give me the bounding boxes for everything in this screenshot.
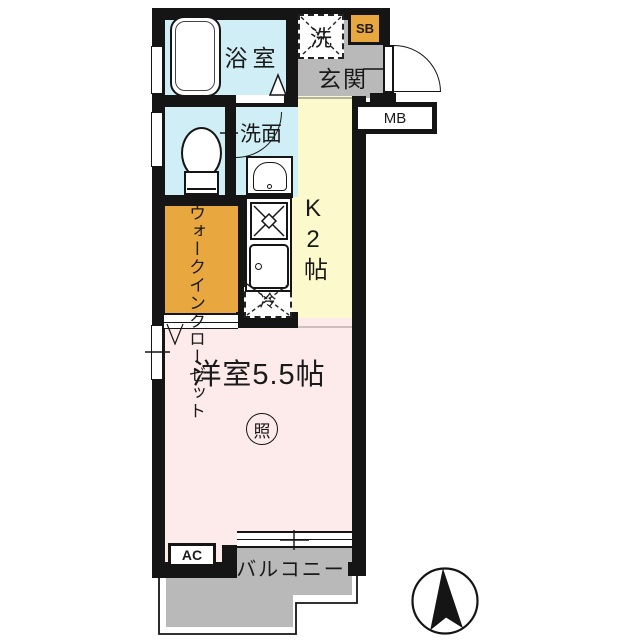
wall-toilet-washroom-divider — [225, 103, 236, 197]
ac-label: AC — [168, 543, 216, 567]
entrance-door-arc — [394, 45, 441, 92]
balcony-sliding-window — [237, 531, 352, 548]
main-room-window — [151, 325, 163, 380]
meterbox-label: MB — [353, 102, 437, 134]
entrance-door-leaf — [383, 45, 394, 93]
balcony-region-left — [166, 578, 293, 627]
bathroom-label: 浴室 — [205, 42, 300, 70]
lighting-symbol: 照 — [246, 413, 278, 445]
washbasin-drain — [267, 184, 272, 189]
toilet-window — [151, 112, 163, 167]
stove-icon — [250, 202, 288, 240]
laundry-label: 洗 — [298, 14, 344, 59]
sink-drain — [255, 263, 262, 270]
balcony-label: バルコニー — [226, 555, 356, 579]
refrigerator-label: 冷 — [244, 281, 292, 318]
main-room-label: 洋室5.5帖 — [164, 355, 354, 389]
kitchen-label: K2帖 — [296, 186, 330, 294]
north-arrow-icon — [413, 569, 478, 634]
washbasin-icon — [246, 156, 293, 198]
washroom-door-opening — [236, 95, 284, 103]
wall-right-main — [352, 96, 366, 576]
closet-label: ウォークインクローゼット — [160, 204, 206, 314]
entrance-label: 玄関 — [312, 63, 374, 91]
bathroom-window — [151, 46, 163, 94]
floor-plan: 浴室 洗 SB 玄関 MB 洗面 K2帖 ウォークインクローゼット 洋室5.5帖… — [0, 0, 639, 640]
balcony-sliding-window-rail — [237, 539, 352, 540]
toilet-tank — [184, 171, 219, 195]
toilet-tank-line — [187, 188, 216, 190]
shoebox-label: SB — [348, 12, 382, 45]
washroom-label: 洗面 — [228, 120, 294, 146]
